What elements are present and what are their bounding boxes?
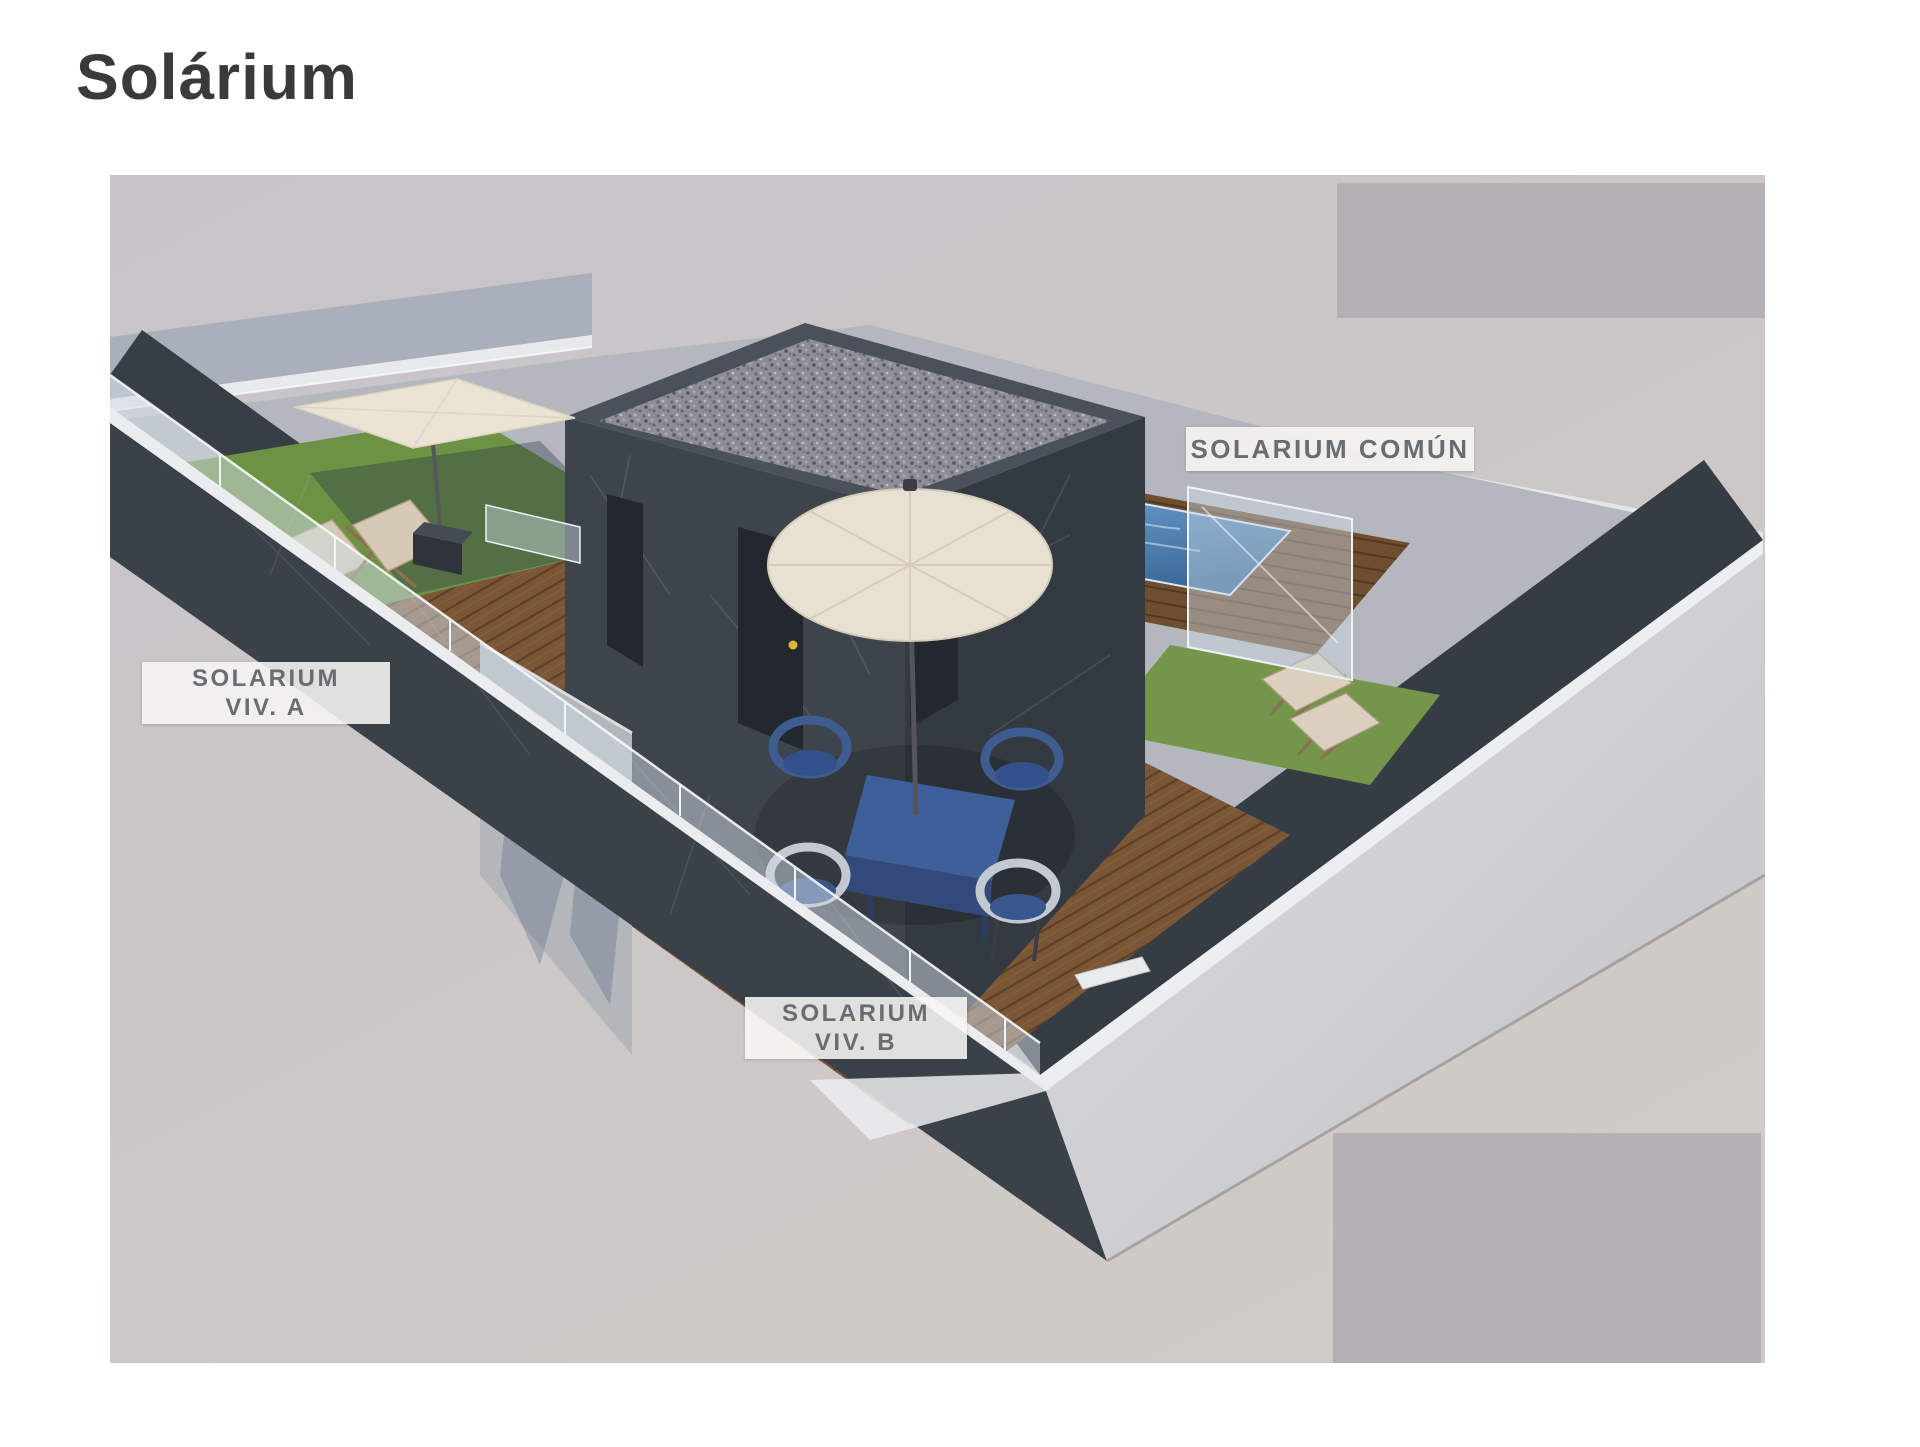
label-text-line1: SOLARIUM	[745, 999, 967, 1028]
umbrella-finial	[903, 479, 917, 491]
label-solarium-comun: SOLARIUM COMÚN	[1186, 427, 1474, 471]
label-solarium-viv-b: SOLARIUM VIV. B	[745, 997, 967, 1059]
label-text-line2: VIV. B	[745, 1028, 967, 1057]
pool-glass-screen	[1188, 487, 1352, 680]
label-solarium-viv-a: SOLARIUM VIV. A	[142, 662, 390, 724]
door-handle	[789, 641, 798, 650]
label-text-line1: SOLARIUM	[142, 664, 390, 693]
redaction-overlay-top-right	[1337, 183, 1765, 318]
page-title: Solárium	[76, 40, 358, 114]
roof-door	[607, 494, 643, 667]
redaction-overlay-bottom-right	[1333, 1133, 1761, 1363]
solarium-rendering: SOLARIUM COMÚN SOLARIUM VIV. A SOLARIUM …	[110, 175, 1765, 1363]
label-text: SOLARIUM COMÚN	[1186, 434, 1474, 465]
label-text-line2: VIV. A	[142, 693, 390, 722]
